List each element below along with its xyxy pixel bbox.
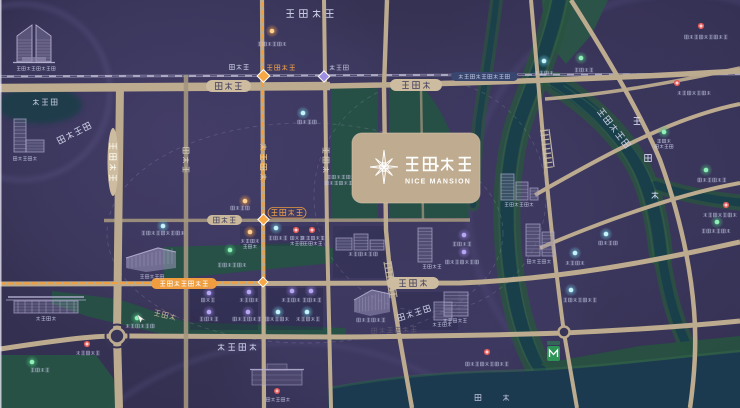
svg-text:NICE MANSION: NICE MANSION — [405, 179, 471, 186]
